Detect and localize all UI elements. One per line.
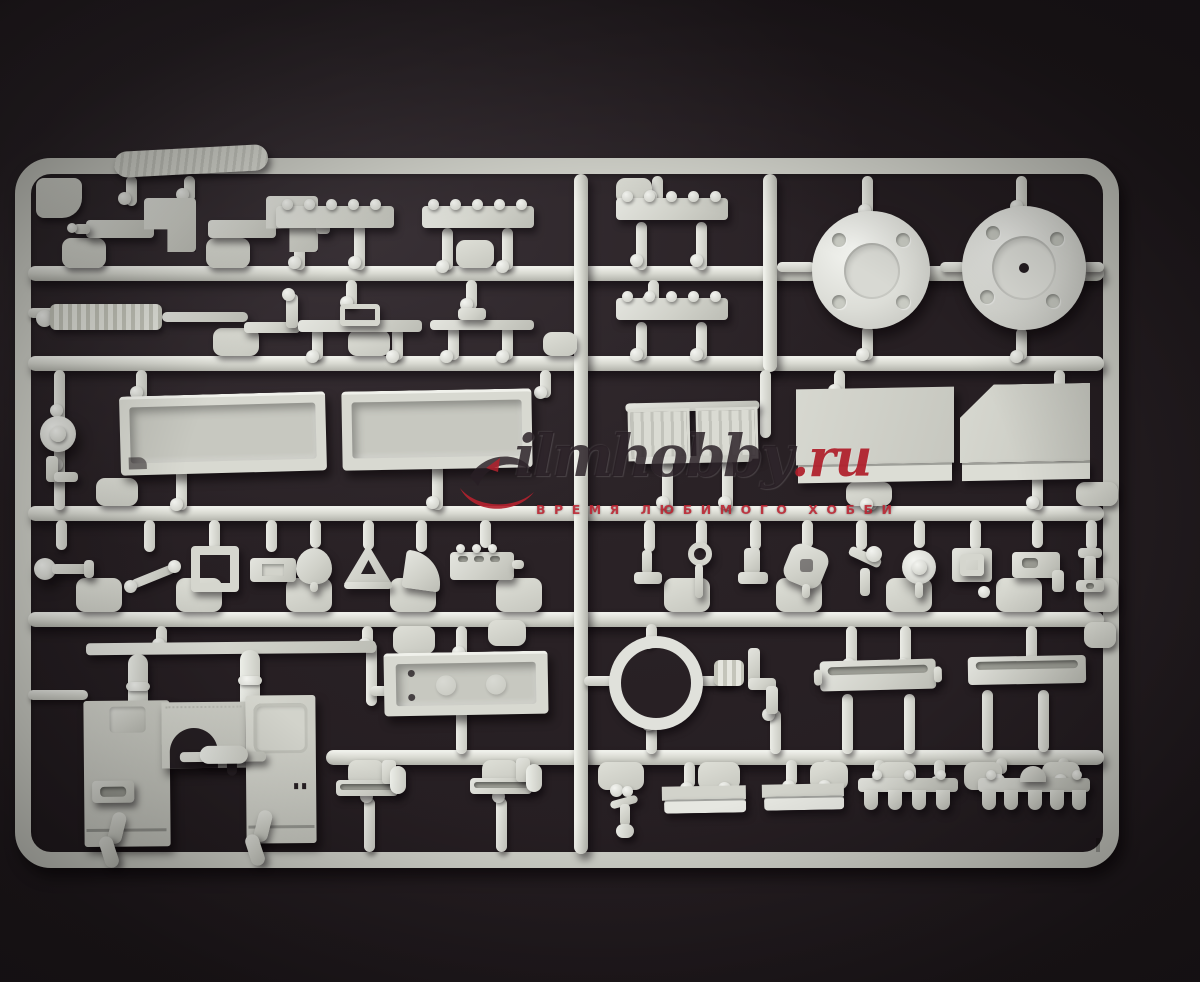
axle-nub — [644, 291, 655, 302]
part-torsion-rod — [36, 294, 304, 342]
sprue-part-detail — [1004, 790, 1018, 810]
sprue-part-detail — [396, 662, 537, 706]
sprue-part-detail — [50, 426, 66, 442]
part-square-bracket — [952, 544, 1000, 592]
sprue-part-detail — [642, 550, 652, 574]
sprue-part-detail — [664, 798, 746, 813]
sprue-part-detail — [1019, 263, 1029, 273]
sprue-part-detail — [144, 198, 196, 252]
part-s-hook-b — [246, 810, 280, 864]
sprue-stub — [1086, 520, 1097, 550]
sprue-tab — [393, 626, 435, 654]
gate-bump — [348, 256, 361, 269]
gate-bump — [306, 350, 319, 363]
sprue-part-detail — [844, 243, 900, 299]
sprue-tab — [456, 240, 494, 268]
sprue-part-detail — [126, 682, 150, 691]
sprue-part-detail — [980, 290, 994, 304]
sprue-part-detail — [100, 787, 126, 797]
sprue-stub — [266, 520, 277, 552]
sprue-part-detail — [488, 544, 497, 553]
part-boot — [738, 548, 772, 586]
sprue-part-detail — [872, 770, 882, 780]
gate-bump — [860, 498, 873, 511]
part-step-bracket-a — [336, 760, 406, 806]
sprue-part-detail — [124, 580, 137, 593]
part-axle-d — [616, 298, 728, 320]
sprue-stub — [750, 520, 761, 550]
sprue-part-detail — [1084, 556, 1096, 582]
sprue-part-detail — [474, 782, 528, 788]
part-blade-b — [762, 781, 847, 812]
sprue-tab — [1084, 622, 1116, 648]
part-l-bracket-a — [86, 198, 204, 254]
axle-nub — [428, 199, 439, 210]
sprue-stub — [904, 694, 915, 754]
part-s-hook-a — [100, 812, 134, 866]
cab-top-bar — [86, 641, 376, 656]
part-axle-b — [422, 206, 534, 228]
sprue-part-detail — [1052, 570, 1064, 592]
sprue-part-detail — [129, 403, 316, 464]
sprue-part-detail — [54, 472, 78, 482]
part-axle-a — [276, 206, 394, 228]
sprue-part-detail — [296, 548, 332, 584]
gate-bump — [386, 350, 399, 363]
sprue-part-detail — [616, 824, 634, 838]
sprue-stub — [842, 694, 853, 754]
sprue-stub — [914, 520, 925, 548]
axle-nub — [666, 191, 677, 202]
sprue-part-detail — [800, 559, 813, 572]
axle-nub — [370, 199, 381, 210]
sprue-part-detail — [340, 304, 380, 326]
gate-bump — [1026, 496, 1039, 509]
gate-bump — [496, 350, 509, 363]
part-panel-a — [796, 383, 956, 486]
sprue-part-detail — [962, 461, 1090, 481]
sprue-runner-horizontal — [28, 356, 1104, 371]
part-blade-a — [662, 783, 749, 816]
sprue-part-detail — [474, 556, 484, 562]
sprue-runner-vertical — [763, 174, 777, 372]
sprue-part-detail — [986, 226, 1000, 240]
gate-bump — [1010, 350, 1023, 363]
sprue-part-detail — [896, 295, 910, 309]
sprue-part-detail — [982, 790, 996, 810]
sprue-tab — [1076, 482, 1118, 506]
part-figure — [604, 786, 648, 838]
sprue-stub — [416, 520, 427, 552]
part-a-frame — [344, 544, 392, 590]
axle-nub — [622, 191, 633, 202]
sprue-part-detail — [1072, 770, 1082, 780]
sprue-stub — [144, 520, 155, 552]
gate-bump — [856, 348, 869, 361]
sprue-stub — [310, 520, 321, 548]
corner-gusset — [36, 178, 82, 218]
sprue-stub — [56, 520, 67, 550]
sprue-part-detail — [796, 387, 954, 466]
frame-seam — [1096, 838, 1100, 852]
part-foot — [634, 550, 666, 588]
part-ring — [609, 636, 703, 730]
sprue-part-detail — [472, 544, 481, 553]
sprue-part-detail — [888, 790, 902, 810]
sprue-part-detail — [526, 764, 542, 792]
axle-nub — [494, 199, 505, 210]
sprue-part-detail — [402, 550, 445, 593]
axle-nub — [326, 199, 337, 210]
gate-bump — [288, 256, 301, 269]
sprue-part-detail — [1028, 790, 1042, 810]
sprue-part-detail — [860, 568, 870, 596]
part-hull-tub-a — [119, 391, 327, 475]
sprue-part-detail — [915, 582, 923, 598]
sprue-part-detail — [129, 457, 147, 469]
part-panel-b — [960, 381, 1092, 483]
sprue-part-detail — [832, 295, 846, 309]
sprue-part-detail — [253, 703, 307, 753]
part-axle-c — [616, 198, 728, 220]
part-manifold-b — [978, 766, 1092, 818]
part-turret-disc-right — [962, 206, 1086, 330]
sprue-part-detail — [490, 556, 500, 562]
sprue-part-detail — [1050, 232, 1064, 246]
sprue-part-detail — [802, 584, 810, 598]
sprue-part-detail — [408, 670, 415, 677]
axle-nub — [450, 199, 461, 210]
part-step-bracket-b — [470, 758, 542, 804]
sprue-part-detail — [978, 586, 990, 598]
sprue-part-detail — [744, 548, 760, 574]
part-valve — [34, 550, 94, 588]
axle-nub — [282, 199, 293, 210]
sprue-part-detail — [866, 546, 882, 562]
part-flat-bracket — [1012, 546, 1068, 596]
sprue-part-detail — [262, 564, 284, 576]
sprue-part-detail — [912, 560, 927, 575]
sprue-stub — [1032, 520, 1043, 548]
axle-nub — [304, 199, 315, 210]
sprue-part-detail — [864, 790, 878, 810]
sprue-part-detail — [1072, 790, 1086, 810]
sprue-part-detail — [960, 554, 984, 576]
axle-nub — [622, 291, 633, 302]
sprue-part-detail — [904, 770, 914, 780]
part-gear-disc — [784, 546, 830, 598]
sprue-part-detail — [934, 666, 942, 682]
gate-bump — [630, 254, 643, 267]
sprue-photo: ilmhobby.ru ВРЕМЯ ЛЮБИМОГО ХОББИ — [0, 0, 1200, 982]
axle-nub — [710, 191, 721, 202]
sprue-part-detail — [458, 556, 468, 562]
sprue-part-detail — [1020, 766, 1046, 782]
part-bent-rod — [124, 554, 182, 596]
part-small-bracket — [46, 456, 78, 482]
sprue-part-detail — [238, 676, 262, 685]
sprue-stub — [760, 370, 771, 438]
sprue-part-detail — [162, 312, 248, 322]
part-elbow-lever — [840, 544, 888, 602]
gate-bump — [718, 496, 731, 509]
sprue-stub — [982, 690, 993, 752]
gate-bump — [690, 348, 703, 361]
axle-nub — [644, 191, 655, 202]
part-channel-a — [820, 658, 937, 699]
sprue-runner-horizontal — [28, 612, 1104, 627]
sprue-part-detail — [1046, 294, 1060, 308]
sprue-tab — [96, 478, 138, 506]
sprue-part-detail — [912, 790, 926, 810]
gate-bump — [170, 498, 183, 511]
axle-nub — [348, 199, 359, 210]
gate-bump — [656, 496, 669, 509]
sprue-part-detail — [1050, 790, 1064, 810]
sprue-part-detail — [688, 542, 712, 566]
sprue-part-detail — [344, 582, 392, 589]
sprue-part-detail — [109, 706, 145, 732]
gate-bump — [534, 386, 547, 399]
axle-nub — [516, 199, 527, 210]
part-grille — [625, 401, 760, 466]
sprue-part-detail — [832, 233, 846, 247]
sprue-part-detail — [936, 790, 950, 810]
sprue-part-detail — [814, 669, 822, 685]
part-channel-b — [968, 655, 1087, 693]
sprue-stub — [364, 798, 375, 852]
gate-bump — [690, 254, 703, 267]
axle-nub — [688, 291, 699, 302]
part-rivet-tray — [383, 651, 548, 717]
sprue-part-detail — [200, 746, 248, 764]
part-hull-tub-b — [341, 388, 532, 470]
sprue-part-detail — [695, 564, 703, 598]
part-plate — [250, 554, 296, 586]
sprue-part-detail — [208, 220, 276, 238]
sprue-part-detail — [764, 795, 844, 810]
sprue-part-detail — [1086, 583, 1094, 589]
gate-bump — [496, 260, 509, 273]
part-turret-disc-left — [812, 211, 930, 329]
part-dome — [296, 548, 332, 592]
sprue-tab — [488, 620, 526, 646]
sprue-part-detail — [634, 572, 662, 584]
sprue-part-detail — [458, 308, 486, 320]
part-h-bracket — [1074, 548, 1110, 602]
sprue-part-detail — [340, 784, 394, 790]
sprue-part-detail — [627, 408, 690, 461]
part-fin — [402, 550, 446, 594]
sprue-part-detail — [67, 223, 77, 233]
sprue-part-detail — [50, 304, 162, 330]
part-frame-box — [191, 546, 239, 592]
part-ring-rod — [686, 542, 714, 600]
sprue-part-detail — [84, 560, 94, 578]
sprue-part-detail — [282, 288, 295, 301]
sprue-part-detail — [294, 783, 298, 789]
axle-nub — [472, 199, 483, 210]
gate-bump — [426, 496, 439, 509]
gate-bump — [440, 350, 453, 363]
axle-nub — [710, 291, 721, 302]
sprue-stub — [28, 690, 88, 700]
sprue-stub — [496, 798, 507, 852]
sprue-part-detail — [896, 233, 910, 247]
sprue-stub — [1038, 690, 1049, 752]
sprue-part-detail — [634, 455, 752, 464]
part-elbow-pipe — [714, 648, 782, 716]
sprue-part-detail — [86, 220, 154, 238]
sprue-part-detail — [766, 686, 778, 714]
sprue-stub — [644, 520, 655, 552]
sprue-part-detail — [620, 804, 630, 826]
sprue-stub — [777, 262, 815, 272]
sprue-part-detail — [352, 400, 523, 459]
gate-bump — [436, 260, 449, 273]
part-bar-box-a — [298, 304, 422, 336]
sprue-part-detail — [168, 560, 181, 573]
sprue-part-detail — [390, 766, 406, 794]
sprue-part-detail — [738, 572, 768, 584]
part-manifold-a — [858, 770, 960, 818]
part-bar-box-b — [430, 306, 534, 336]
part-ball-disc — [898, 548, 942, 600]
axle-nub — [666, 291, 677, 302]
sprue-part-detail — [1022, 558, 1038, 568]
sprue-part-detail — [936, 770, 946, 780]
part-idler-knob — [40, 416, 76, 452]
sprue-runner-horizontal — [28, 506, 1104, 521]
sprue-part-detail — [456, 544, 465, 553]
sprue-tab — [543, 332, 577, 356]
sprue-part-detail — [302, 783, 306, 789]
gate-bump — [630, 348, 643, 361]
sprue-part-detail — [714, 660, 744, 686]
sprue-part-detail — [165, 706, 241, 709]
part-block — [450, 544, 524, 586]
sprue-part-detail — [430, 320, 534, 330]
sprue-part-detail — [798, 463, 952, 484]
sprue-runner-vertical — [574, 174, 588, 854]
sprue-part-detail — [695, 407, 758, 460]
sprue-part-detail — [310, 582, 318, 592]
axle-nub — [688, 191, 699, 202]
sprue-part-detail — [512, 560, 524, 569]
sprue-part-detail — [960, 383, 1090, 463]
sprue-part-detail — [986, 770, 996, 780]
